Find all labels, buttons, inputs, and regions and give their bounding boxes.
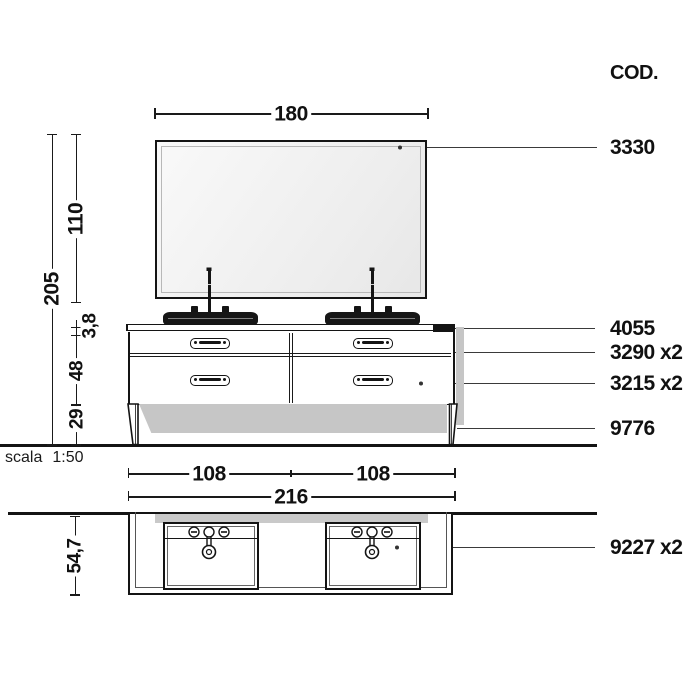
drawer-divider-a	[289, 333, 290, 403]
dim-tick	[71, 302, 81, 304]
handle-bottom-right	[353, 375, 393, 386]
handle-top-right	[353, 338, 393, 349]
handle-top-left	[190, 338, 230, 349]
leader-line-leg	[457, 428, 595, 429]
dim-countertop-thickness: 3,8	[81, 311, 100, 342]
dim-tick	[454, 491, 456, 501]
dim-total-width: 216	[271, 487, 311, 508]
dim-mid-tick	[290, 470, 292, 477]
washbasin-plan-right	[325, 522, 421, 590]
dim-tick	[47, 444, 57, 446]
dim-tick	[454, 468, 456, 478]
dim-cabinet-height: 48	[68, 358, 87, 384]
scale-label: scala	[5, 449, 42, 466]
leader-line-mirror	[400, 147, 597, 148]
code-countertop: 4055	[610, 319, 655, 339]
washbasin-plan-left	[163, 522, 259, 590]
dim-leg-height: 29	[68, 406, 87, 432]
dim-right-basin-span: 108	[353, 464, 393, 485]
dim-tick	[47, 134, 57, 136]
dim-tick	[70, 516, 80, 518]
mirror-front-view	[155, 140, 427, 299]
ground-line	[0, 444, 597, 447]
code-leg: 9776	[610, 419, 655, 439]
dim-mirror-height: 110	[66, 200, 87, 238]
countertop-front-view	[126, 324, 455, 331]
drawer-divider-b	[292, 333, 293, 403]
cod-column-header: COD.	[610, 62, 658, 85]
dim-tick	[71, 444, 81, 446]
dim-tick	[427, 108, 429, 119]
handle-bottom-left	[190, 375, 230, 386]
code-mirror: 3330	[610, 138, 655, 158]
code-washbasin-plan: 9227 x2	[610, 538, 682, 558]
drawer-gap-lower	[130, 356, 451, 357]
drawer-gap-upper	[130, 353, 451, 354]
dim-tick	[128, 468, 130, 478]
faucet-right	[371, 270, 374, 314]
dim-tick	[70, 594, 80, 596]
leg-left	[128, 404, 138, 445]
dim-left-basin-span: 108	[189, 464, 229, 485]
dim-mirror-width: 180	[271, 104, 311, 125]
dim-total-height: 205	[42, 269, 63, 309]
dim-depth: 54,7	[66, 536, 85, 577]
faucet-left	[208, 270, 211, 314]
mirror-inner-frame	[161, 146, 421, 293]
dim-tick	[128, 491, 130, 501]
leader-line-upper-drawer	[455, 352, 595, 353]
scale-note: scala1:50	[5, 449, 94, 467]
code-upper-drawer: 3290 x2	[610, 343, 682, 363]
dim-tick	[71, 134, 81, 136]
cabinet-side-shadow	[456, 327, 464, 425]
scale-value: 1:50	[52, 449, 83, 466]
code-lower-drawer: 3215 x2	[610, 374, 682, 394]
floor-shadow	[139, 404, 447, 433]
dim-tick	[154, 108, 156, 119]
technical-drawing-canvas: COD. 3330 4055 3290 x2 3215 x2 9776 9227…	[0, 0, 700, 700]
countertop-end-cap	[433, 324, 455, 332]
